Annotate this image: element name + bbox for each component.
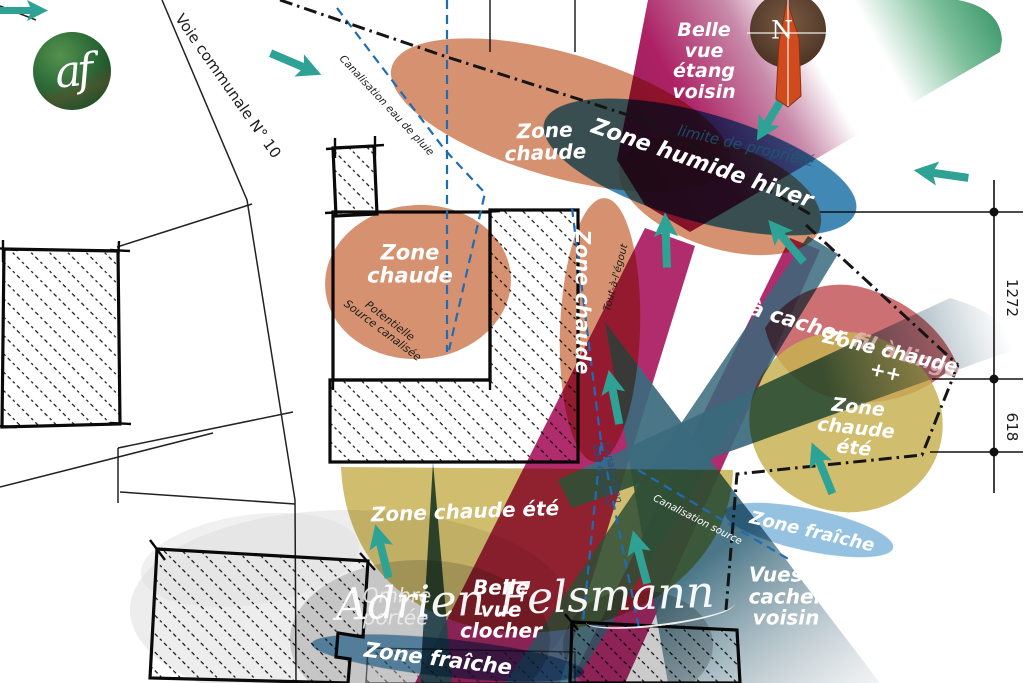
logo: af xyxy=(33,32,111,110)
building-west xyxy=(2,249,120,427)
building-small-north xyxy=(333,146,377,216)
logo-initials: af xyxy=(52,44,92,98)
site-analysis-plan: Voie communale N° 10 Canalisation eau de… xyxy=(0,0,1024,683)
arrow-road xyxy=(266,42,326,86)
zone-chaude-west-blob xyxy=(320,199,516,366)
arrow-east xyxy=(912,158,970,190)
plan-drawing xyxy=(0,0,1024,683)
